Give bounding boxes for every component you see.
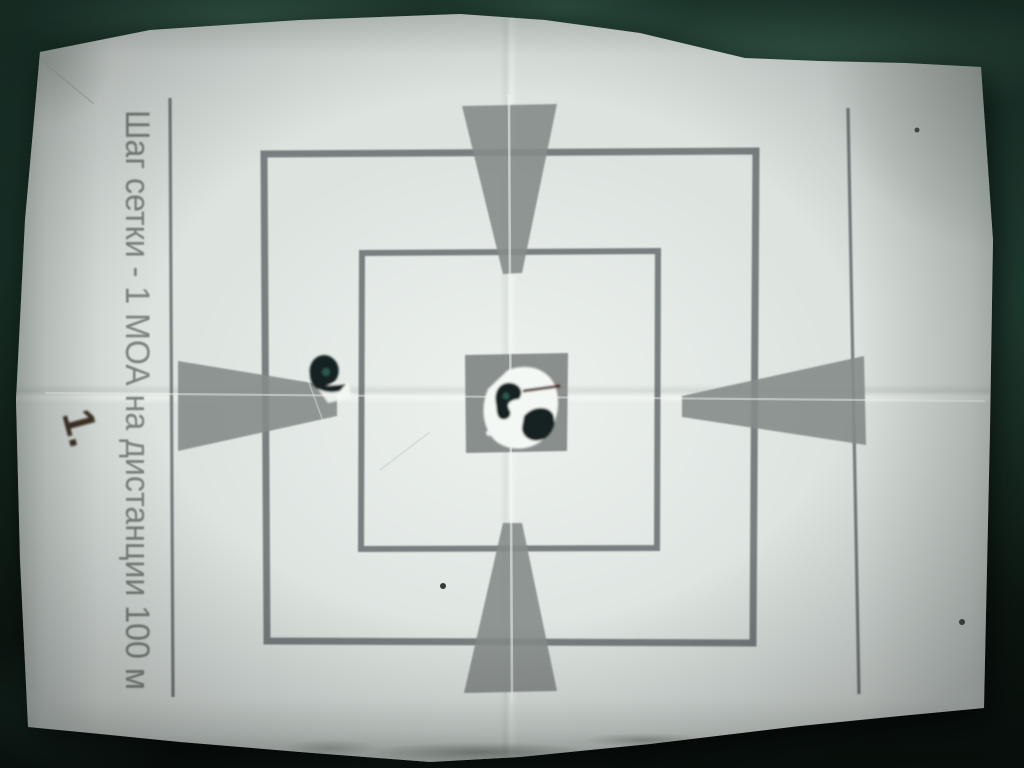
paper-speck-a — [486, 430, 492, 436]
speck-1 — [440, 583, 446, 589]
handwritten-number: 1. — [52, 404, 109, 452]
wrinkle-line-2 — [380, 432, 430, 470]
left-reference-line — [170, 98, 173, 697]
target-paper-sheet: Шаг сетки - 1 МОА на дистанции 100 м 1. — [0, 0, 1024, 768]
center-hole-glint — [503, 393, 510, 400]
photo-scene: Шаг сетки - 1 МОА на дистанции 100 м 1. — [0, 0, 1024, 768]
corner-fold-crease — [36, 56, 94, 104]
bullet-holes — [310, 355, 560, 449]
target-print: Шаг сетки - 1 МОА на дистанции 100 м 1. — [0, 0, 1024, 768]
speck-2 — [915, 128, 920, 133]
speck-3 — [959, 619, 965, 625]
paper-shadow: Шаг сетки - 1 МОА на дистанции 100 м 1. — [0, 0, 1024, 768]
left-hole-glint — [322, 368, 330, 376]
grid-step-label: Шаг сетки - 1 МОА на дистанции 100 м — [118, 110, 156, 690]
